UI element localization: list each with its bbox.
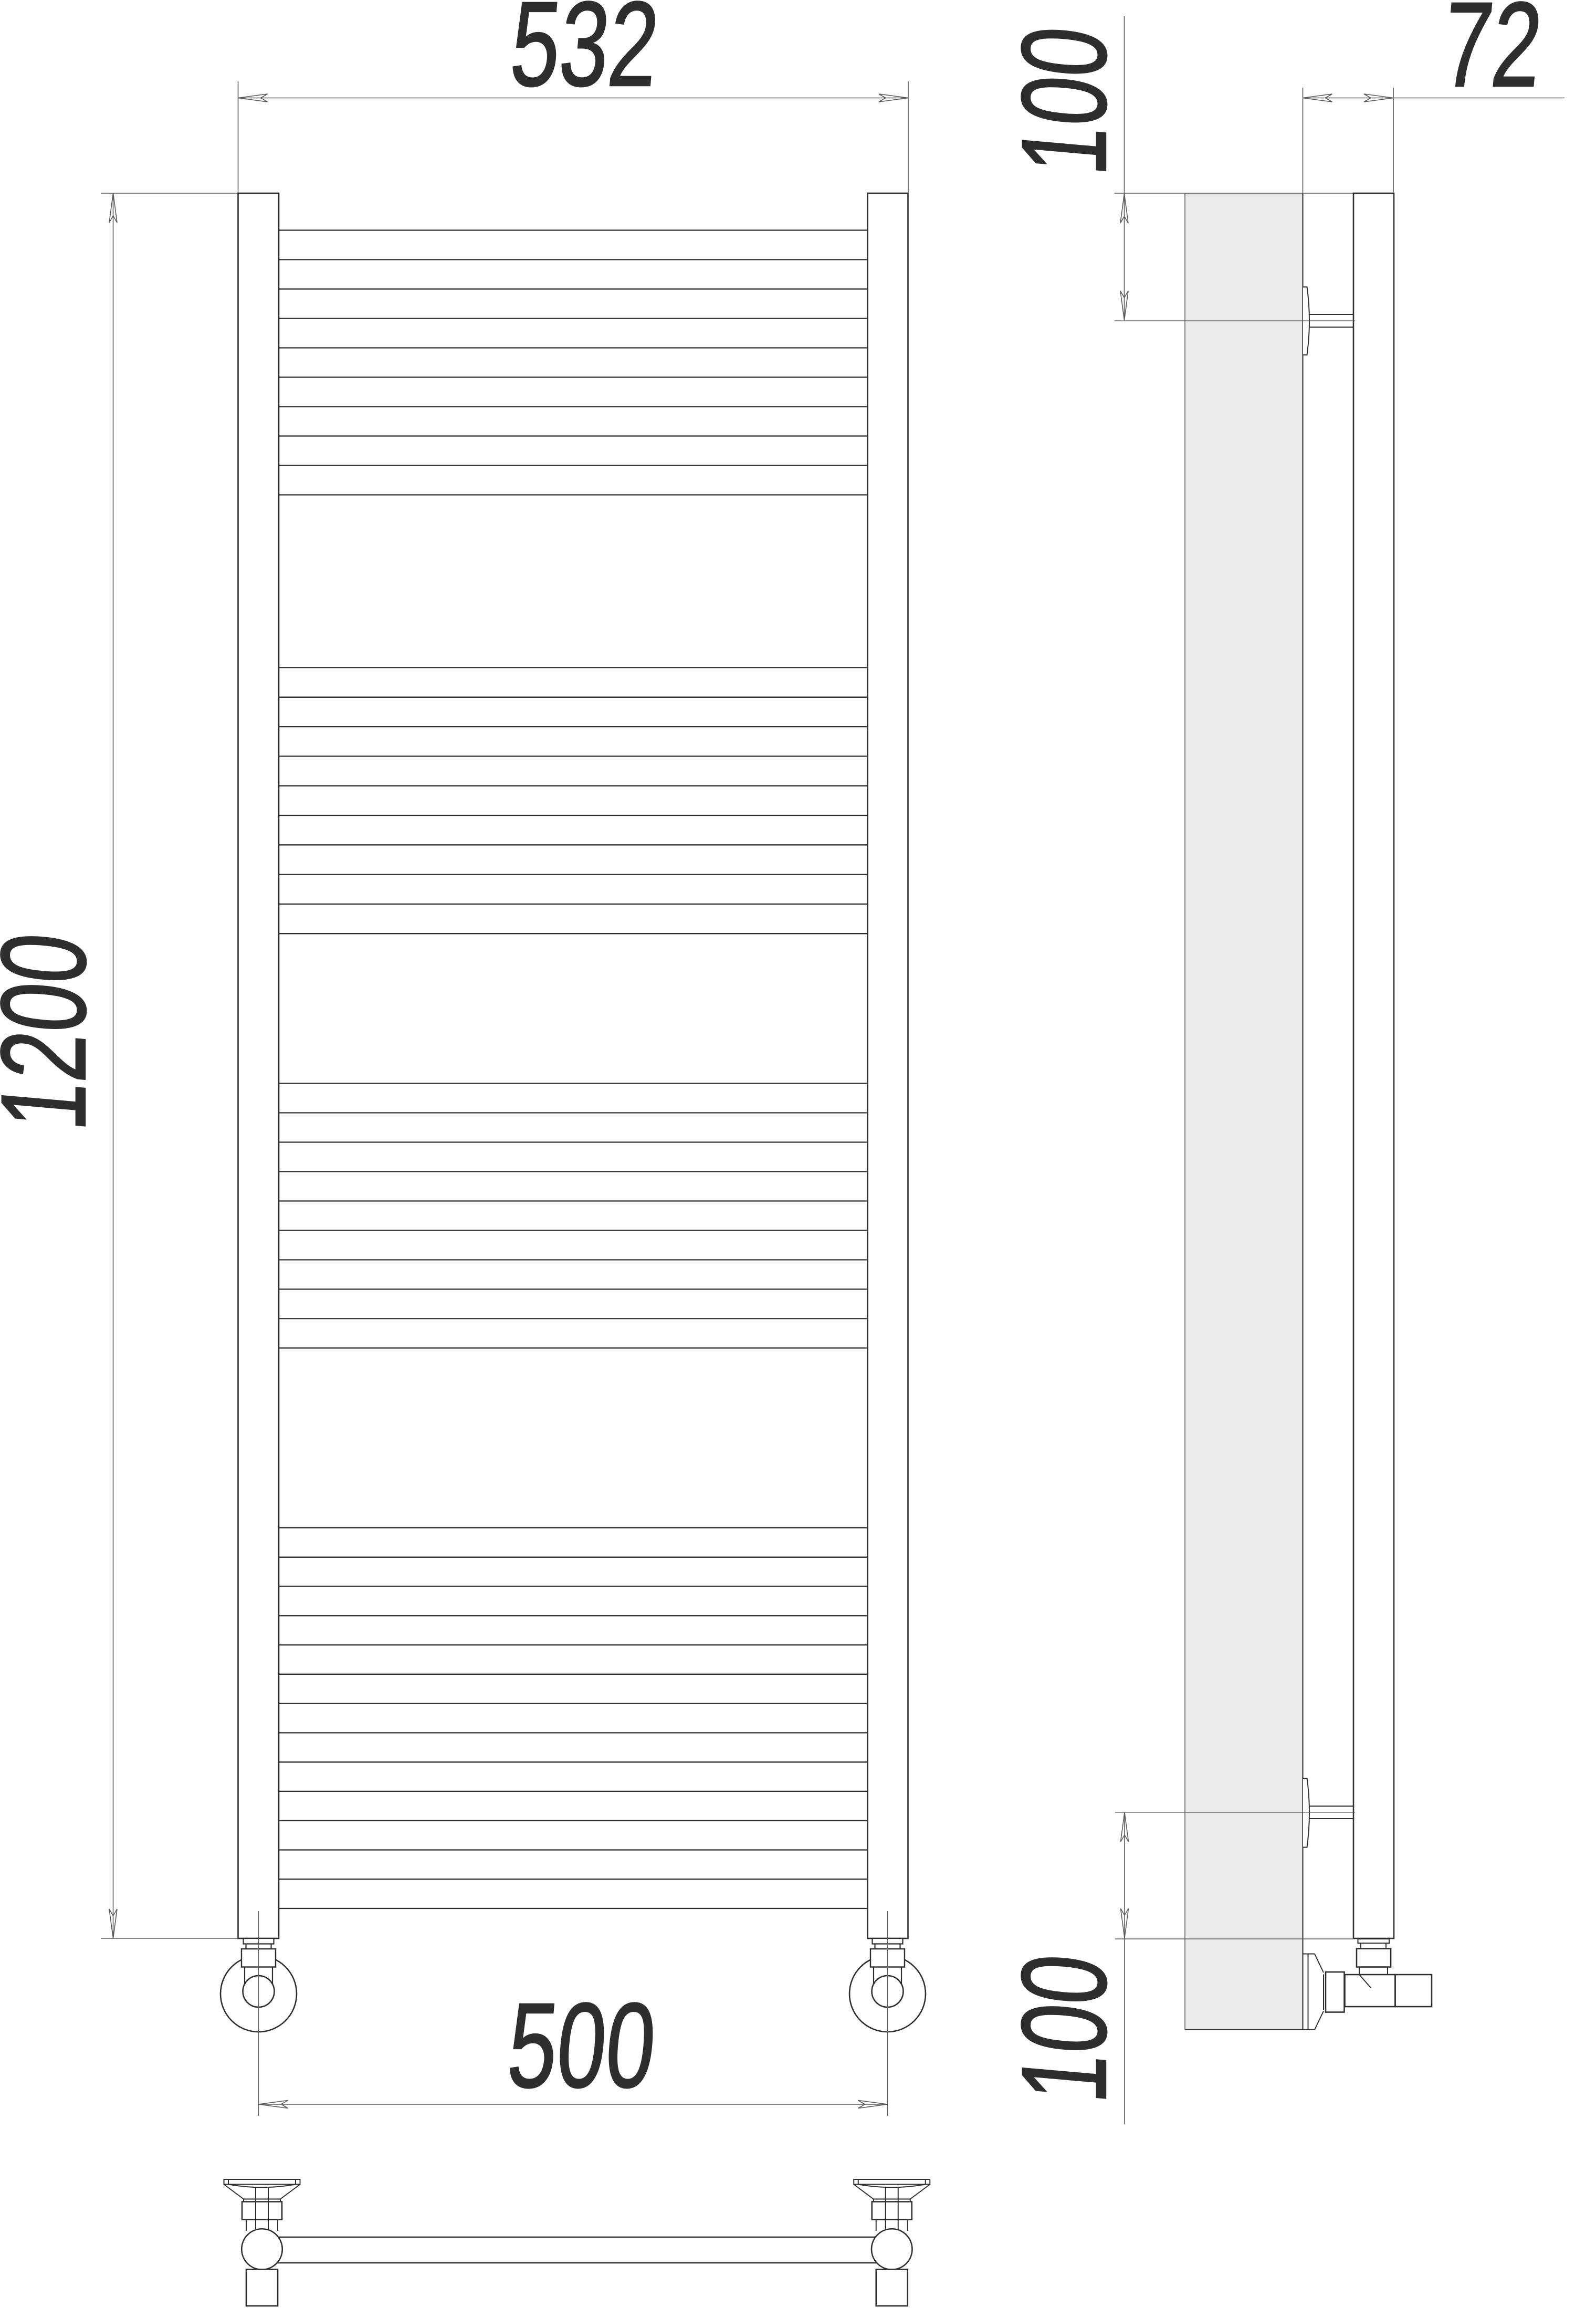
svg-text:72: 72	[1438, 0, 1547, 112]
svg-text:1200: 1200	[0, 928, 111, 1135]
svg-text:532: 532	[506, 0, 664, 111]
svg-text:100: 100	[996, 22, 1131, 180]
svg-text:100: 100	[996, 1949, 1131, 2107]
svg-text:500: 500	[503, 1978, 661, 2113]
